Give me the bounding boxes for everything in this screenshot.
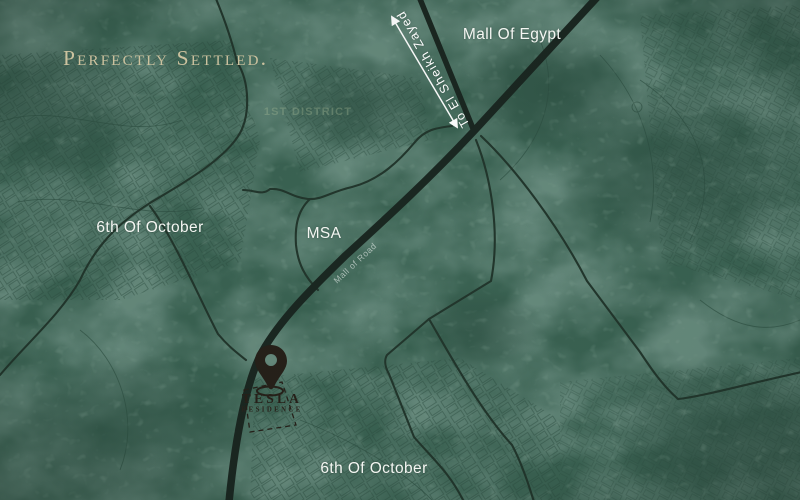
map-label-1st-district: 1st District <box>264 106 352 118</box>
map-label-mall-of-egypt: Mall Of Egypt <box>463 26 561 44</box>
tesla-logo-title: TESLA <box>242 391 302 407</box>
map-label-msa: MSA <box>307 225 342 243</box>
map-canvas: Perfectly Settled. 1st District Mall Of … <box>0 0 800 500</box>
map-graphic <box>0 0 800 500</box>
map-label-6th-of-october-south: 6th Of October <box>320 460 427 478</box>
brand-tagline: Perfectly Settled. <box>63 46 268 71</box>
tesla-logo-subtitle: RESIDENCE <box>241 407 302 414</box>
vignette-overlay <box>0 0 800 500</box>
map-label-6th-of-october-west: 6th Of October <box>96 219 203 237</box>
